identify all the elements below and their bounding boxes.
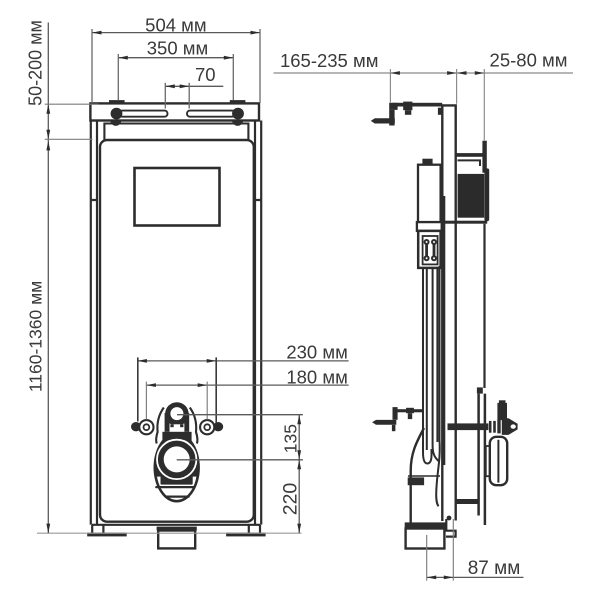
svg-text:504 мм: 504 мм xyxy=(145,14,206,35)
svg-text:230 мм: 230 мм xyxy=(286,341,347,362)
svg-text:135: 135 xyxy=(281,424,301,453)
svg-text:180 мм: 180 мм xyxy=(286,366,347,387)
svg-text:165-235 мм: 165-235 мм xyxy=(280,50,378,71)
svg-text:50-200 мм: 50-200 мм xyxy=(26,20,46,106)
svg-text:25-80 мм: 25-80 мм xyxy=(490,50,568,71)
svg-text:70: 70 xyxy=(195,64,216,85)
svg-text:1160-1360 мм: 1160-1360 мм xyxy=(26,281,46,392)
svg-text:350 мм: 350 мм xyxy=(147,38,208,59)
svg-text:220: 220 xyxy=(280,483,302,516)
svg-text:87 мм: 87 мм xyxy=(468,558,521,579)
